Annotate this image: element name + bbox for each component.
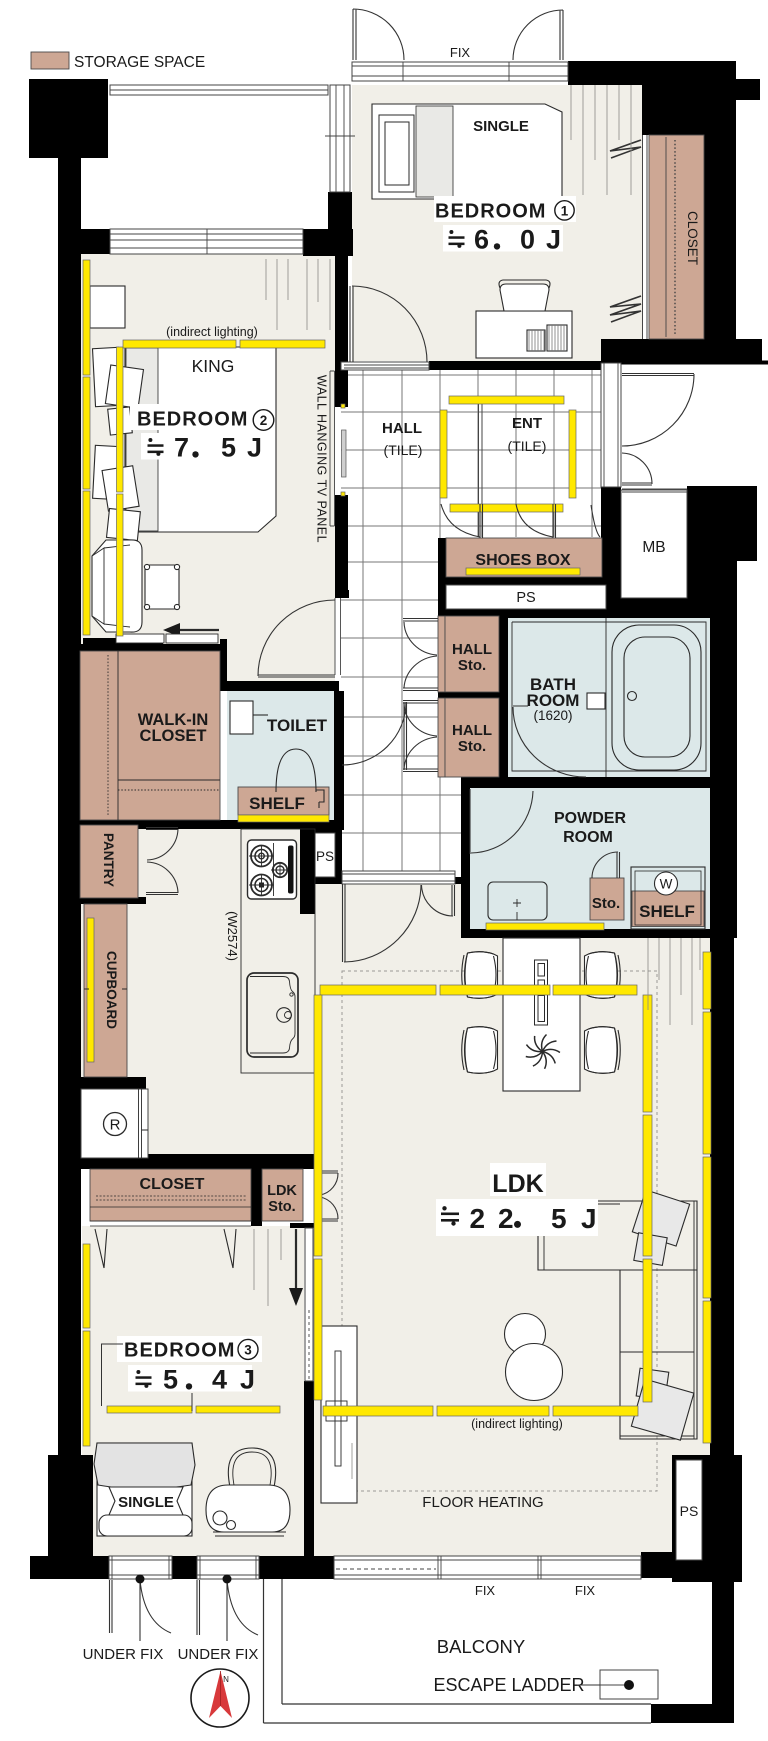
svg-text:POWDER: POWDER xyxy=(554,810,626,827)
svg-text:HALL: HALL xyxy=(452,641,492,658)
svg-text:ESCAPE LADDER: ESCAPE LADDER xyxy=(433,1675,584,1695)
svg-text:PS: PS xyxy=(516,590,535,606)
svg-text:STORAGE SPACE: STORAGE SPACE xyxy=(74,54,205,71)
svg-text:TOILET: TOILET xyxy=(267,716,328,735)
svg-text:J: J xyxy=(240,1365,255,1395)
svg-text:5: 5 xyxy=(163,1365,178,1395)
svg-text:7: 7 xyxy=(174,433,189,463)
svg-text:HALL: HALL xyxy=(382,420,422,437)
svg-text:2: 2 xyxy=(498,1203,514,1234)
svg-text:CUPBOARD: CUPBOARD xyxy=(104,951,119,1029)
svg-text:R: R xyxy=(110,1117,121,1134)
svg-text:SINGLE: SINGLE xyxy=(473,118,529,135)
svg-text:J: J xyxy=(546,225,561,255)
svg-text:2: 2 xyxy=(260,413,268,428)
svg-text:PANTRY: PANTRY xyxy=(101,833,116,887)
svg-text:(indirect lighting): (indirect lighting) xyxy=(471,1417,563,1431)
svg-text:CLOSET: CLOSET xyxy=(685,211,700,265)
svg-text:W: W xyxy=(660,877,673,892)
svg-text:0: 0 xyxy=(520,225,535,255)
svg-text:SHELF: SHELF xyxy=(249,794,305,813)
svg-text:FIX: FIX xyxy=(575,1583,596,1598)
svg-text:CLOSET: CLOSET xyxy=(140,727,207,745)
svg-text:MB: MB xyxy=(642,539,665,556)
svg-text:4: 4 xyxy=(212,1365,227,1395)
svg-text:N: N xyxy=(223,1675,229,1684)
svg-text:(indirect lighting): (indirect lighting) xyxy=(166,325,258,339)
svg-text:BEDROOM: BEDROOM xyxy=(435,201,546,223)
svg-text:FIX: FIX xyxy=(450,45,471,60)
svg-text:Sto.: Sto. xyxy=(268,1199,295,1215)
svg-text:(1620): (1620) xyxy=(533,708,572,723)
svg-text:J: J xyxy=(581,1203,597,1234)
svg-text:3: 3 xyxy=(244,1343,252,1358)
svg-text:WALL HANGING TV PANEL: WALL HANGING TV PANEL xyxy=(315,375,329,543)
svg-text:HALL: HALL xyxy=(452,722,492,739)
svg-text:Sto.: Sto. xyxy=(592,895,620,912)
svg-text:Sto.: Sto. xyxy=(458,657,486,674)
svg-text:UNDER FIX: UNDER FIX xyxy=(178,1646,259,1663)
svg-text:ENT: ENT xyxy=(512,415,542,432)
svg-text:UNDER FIX: UNDER FIX xyxy=(83,1646,164,1663)
svg-text:SINGLE: SINGLE xyxy=(118,1494,174,1511)
svg-text:2: 2 xyxy=(470,1203,486,1234)
svg-text:CLOSET: CLOSET xyxy=(140,1176,205,1193)
svg-text:LDK: LDK xyxy=(267,1183,297,1199)
svg-text:SHELF: SHELF xyxy=(639,902,695,921)
svg-text:BEDROOM: BEDROOM xyxy=(137,409,248,431)
svg-text:KING: KING xyxy=(192,356,235,376)
svg-text:PS: PS xyxy=(680,1503,699,1519)
svg-text:J: J xyxy=(247,433,262,463)
svg-text:ROOM: ROOM xyxy=(563,829,613,846)
svg-text:Sto.: Sto. xyxy=(458,738,486,755)
svg-text:FIX: FIX xyxy=(475,1583,496,1598)
svg-text:(TILE): (TILE) xyxy=(384,442,423,458)
svg-text:PS: PS xyxy=(316,849,334,864)
svg-text:FLOOR HEATING: FLOOR HEATING xyxy=(422,1494,543,1511)
svg-text:(W2574): (W2574) xyxy=(225,911,240,961)
svg-text:LDK: LDK xyxy=(492,1170,543,1198)
svg-text:SHOES BOX: SHOES BOX xyxy=(475,552,570,569)
svg-text:BALCONY: BALCONY xyxy=(437,1636,525,1657)
svg-text:(TILE): (TILE) xyxy=(508,438,547,454)
svg-text:5: 5 xyxy=(551,1203,567,1234)
svg-text:6: 6 xyxy=(474,225,489,255)
svg-text:5: 5 xyxy=(221,433,236,463)
svg-text:BEDROOM: BEDROOM xyxy=(124,1340,235,1362)
svg-text:1: 1 xyxy=(561,204,569,219)
